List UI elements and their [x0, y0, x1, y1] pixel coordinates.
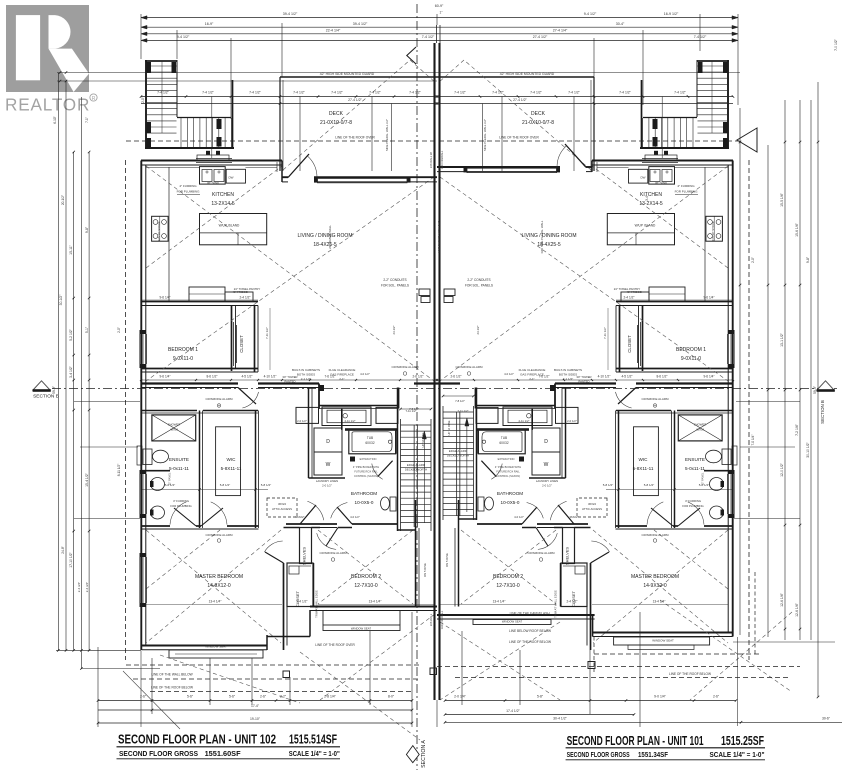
svg-text:24-8": 24-8"	[61, 546, 65, 554]
svg-text:REALTOR: REALTOR	[5, 95, 90, 115]
svg-text:7-6 1/2": 7-6 1/2"	[538, 375, 549, 379]
svg-text:5-6": 5-6"	[187, 695, 194, 699]
svg-text:BEDROOM 2: BEDROOM 2	[351, 574, 381, 580]
svg-text:13-2X14-5: 13-2X14-5	[211, 201, 235, 207]
svg-text:PANTED: PANTED	[284, 380, 295, 384]
svg-text:LINE OF THE ROOF OVER: LINE OF THE ROOF OVER	[315, 643, 355, 647]
svg-text:2-0 1/4": 2-0 1/4"	[454, 695, 467, 699]
svg-text:FLUE CLEARANCE: FLUE CLEARANCE	[519, 368, 546, 372]
svg-text:13-1 1/2": 13-1 1/2"	[780, 332, 784, 346]
svg-text:W: W	[544, 462, 549, 468]
svg-text:5-8 1/2": 5-8 1/2"	[644, 483, 654, 487]
svg-text:1551.60SF: 1551.60SF	[205, 749, 241, 758]
svg-text:2-4 3/4": 2-4 3/4"	[85, 582, 89, 592]
svg-text:DW: DW	[229, 176, 234, 180]
svg-text:1": 1"	[440, 11, 443, 15]
svg-text:23-1/2": 23-1/2"	[392, 326, 396, 335]
svg-text:LIVING / DINING ROOM: LIVING / DINING ROOM	[521, 233, 576, 239]
svg-text:LINE OF THE WALL BELOW: LINE OF THE WALL BELOW	[151, 673, 192, 677]
svg-text:4" FURRING: 4" FURRING	[179, 184, 197, 188]
svg-text:FUTURE ROX RAIL: FUTURE ROX RAIL	[354, 470, 378, 474]
svg-text:30-6": 30-6"	[822, 717, 831, 721]
svg-text:2-4 3/4": 2-4 3/4"	[77, 582, 81, 592]
svg-text:1HR FIREWALL: 1HR FIREWALL	[440, 150, 444, 169]
svg-text:W/UP ISLAND: W/UP ISLAND	[219, 224, 240, 228]
svg-text:13-4 1/4": 13-4 1/4"	[369, 600, 382, 604]
svg-text:36" SINK: 36" SINK	[655, 181, 667, 185]
svg-text:7-4 1/2": 7-4 1/2"	[409, 91, 422, 95]
svg-text:2X6 WALL W/: 2X6 WALL W/	[429, 152, 433, 168]
svg-text:TUB: TUB	[367, 436, 373, 440]
svg-text:30-4": 30-4"	[616, 22, 625, 26]
svg-text:36" SINK: 36" SINK	[207, 181, 219, 185]
svg-text:10-0X5-0: 10-0X5-0	[355, 500, 374, 505]
svg-text:13-4 1/4": 13-4 1/4"	[209, 600, 222, 604]
svg-text:2-0 1/2": 2-0 1/2"	[542, 484, 552, 488]
svg-text:7-6 1/2": 7-6 1/2"	[324, 375, 335, 379]
svg-text:2-0": 2-0"	[117, 327, 121, 333]
svg-text:LINE PLEXIG. WALL 3-6": LINE PLEXIG. WALL 3-6"	[437, 221, 441, 253]
svg-text:7-11 1/2": 7-11 1/2"	[603, 327, 607, 339]
svg-text:SHOWER: SHOWER	[694, 423, 707, 427]
svg-text:59-9": 59-9"	[813, 385, 817, 394]
svg-text:9-0X11-0: 9-0X11-0	[173, 356, 193, 362]
svg-text:LAUNDRY LINEN: LAUNDRY LINEN	[536, 479, 558, 483]
svg-text:2X6 FRAME WALL: 2X6 FRAME WALL	[328, 225, 332, 249]
svg-text:36X22": 36X22"	[569, 515, 578, 519]
svg-text:UP 16 RISE: UP 16 RISE	[421, 432, 425, 447]
svg-text:WIC: WIC	[227, 457, 237, 462]
svg-text:5-8": 5-8"	[537, 695, 544, 699]
svg-text:CONTROL (SAXON): CONTROL (SAXON)	[354, 474, 378, 478]
svg-text:4-10 1/2": 4-10 1/2"	[264, 375, 277, 379]
svg-text:4-5 1/2": 4-5 1/2"	[241, 375, 252, 379]
svg-text:LIVING / DINING ROOM: LIVING / DINING ROOM	[297, 233, 352, 239]
svg-text:2-2": 2-2"	[280, 695, 287, 699]
svg-text:W: W	[326, 462, 331, 468]
svg-text:LAUNDRY LINEN: LAUNDRY LINEN	[316, 479, 338, 483]
svg-text:9-6 1/4": 9-6 1/4"	[159, 296, 170, 300]
svg-text:5-8X11-11: 5-8X11-11	[633, 466, 654, 471]
svg-text:2-2" CONDUITS: 2-2" CONDUITS	[467, 278, 490, 282]
svg-text:30-1/2": 30-1/2"	[59, 294, 63, 306]
svg-text:ENSUITE: ENSUITE	[685, 457, 705, 462]
svg-text:19-10": 19-10"	[250, 717, 261, 721]
svg-text:4-10 1/2": 4-10 1/2"	[598, 375, 611, 379]
svg-text:LINE OF THE ROOF OVER: LINE OF THE ROOF OVER	[499, 136, 539, 140]
svg-text:2-1 1/2": 2-1 1/2"	[301, 377, 311, 381]
svg-text:SECOND FLOOR GROSS: SECOND FLOOR GROSS	[567, 750, 630, 759]
svg-text:LINE BELOW ROOF BELOW: LINE BELOW ROOF BELOW	[509, 629, 551, 633]
svg-text:8-11 1/2": 8-11 1/2"	[117, 464, 121, 477]
svg-text:17-10 1/2": 17-10 1/2"	[69, 551, 73, 567]
svg-text:WINDOW SEAT: WINDOW SEAT	[205, 645, 227, 649]
svg-text:30" TOWER: 30" TOWER	[282, 375, 297, 379]
svg-text:5-8X11-11: 5-8X11-11	[221, 466, 242, 471]
svg-text:12-7X10-0: 12-7X10-0	[354, 583, 378, 589]
svg-text:F/S 30" STOVE: F/S 30" STOVE	[711, 221, 715, 241]
svg-text:7-11 1/2": 7-11 1/2"	[405, 409, 416, 413]
svg-text:9-8": 9-8"	[806, 256, 810, 263]
svg-text:FUTURE ROX RAIL: FUTURE ROX RAIL	[496, 470, 520, 474]
svg-text:PANTED: PANTED	[578, 380, 589, 384]
svg-text:2-0 1/2": 2-0 1/2"	[322, 484, 332, 488]
svg-text:12-7X10-0: 12-7X10-0	[496, 583, 520, 589]
svg-text:2-0": 2-0"	[751, 257, 755, 263]
svg-text:5-0x11-11: 5-0x11-11	[169, 466, 189, 471]
svg-text:BUILT-IN CABINETS: BUILT-IN CABINETS	[554, 368, 582, 372]
svg-text:8-6 1/2": 8-6 1/2"	[206, 375, 217, 379]
svg-text:9-6 1/4": 9-6 1/4"	[703, 296, 714, 300]
svg-text:2-8 1/4": 2-8 1/4"	[324, 695, 337, 699]
svg-text:5-0 1/4": 5-0 1/4"	[165, 483, 175, 487]
svg-text:7-4 1/2": 7-4 1/2"	[331, 91, 344, 95]
svg-text:9-6 1/4": 9-6 1/4"	[159, 375, 170, 379]
svg-text:TRIM AT WALL EDGE: TRIM AT WALL EDGE	[554, 590, 558, 618]
svg-text:36X22": 36X22"	[295, 515, 304, 519]
svg-text:2-2" CONDUITS: 2-2" CONDUITS	[383, 278, 406, 282]
svg-text:30-10 1/2": 30-10 1/2"	[806, 441, 810, 457]
svg-text:4-0 1/2": 4-0 1/2"	[360, 372, 370, 376]
svg-text:BOTH SIDES: BOTH SIDES	[559, 373, 577, 377]
svg-text:21-0X10-0/7-8: 21-0X10-0/7-8	[522, 120, 554, 126]
svg-text:1515.25SF: 1515.25SF	[721, 734, 764, 748]
svg-text:1551.34SF: 1551.34SF	[638, 750, 668, 759]
svg-text:BEDROOM 2: BEDROOM 2	[493, 574, 523, 580]
svg-text:MASTER BEDROOM: MASTER BEDROOM	[631, 574, 679, 580]
svg-text:5-1": 5-1"	[85, 326, 89, 333]
svg-text:12-6 1/4": 12-6 1/4"	[795, 602, 799, 616]
svg-text:R: R	[92, 96, 96, 102]
svg-text:SECTION A: SECTION A	[421, 740, 427, 768]
svg-text:5-8 1/2": 5-8 1/2"	[261, 483, 271, 487]
svg-text:LINE OF THE EAVE/FLASH.: LINE OF THE EAVE/FLASH.	[510, 612, 551, 616]
svg-text:FAR SIDE PLEXIG. WALL: FAR SIDE PLEXIG. WALL	[540, 220, 544, 253]
svg-text:CLOSET: CLOSET	[627, 335, 632, 353]
svg-text:42" HIGH SIDE MOUNTED GUARD: 42" HIGH SIDE MOUNTED GUARD	[320, 72, 375, 76]
svg-text:5-2 1/2": 5-2 1/2"	[69, 328, 73, 341]
svg-text:FOR SOL. PANELS: FOR SOL. PANELS	[381, 284, 409, 288]
svg-text:CR/SMOKE ALARM: CR/SMOKE ALARM	[205, 397, 233, 401]
svg-text:12-0 1/2": 12-0 1/2"	[780, 462, 784, 476]
svg-text:4" FURRING: 4" FURRING	[173, 499, 189, 503]
svg-text:23-1/2": 23-1/2"	[476, 326, 480, 335]
svg-text:UP 16 RISE: UP 16 RISE	[447, 420, 451, 435]
svg-text:16-9 1/2": 16-9 1/2"	[664, 12, 679, 16]
svg-text:2-4 1/2": 2-4 1/2"	[623, 296, 634, 300]
svg-text:BEDROOM 1: BEDROOM 1	[676, 347, 706, 353]
svg-text:SHELVES: SHELVES	[302, 547, 307, 565]
svg-text:LINE OF THE ROOF BELOW: LINE OF THE ROOF BELOW	[151, 686, 193, 690]
svg-text:39-4 1/2": 39-4 1/2"	[353, 22, 368, 26]
svg-text:D: D	[544, 439, 548, 445]
svg-text:SECTION B: SECTION B	[820, 400, 825, 424]
svg-text:D: D	[326, 439, 330, 445]
svg-text:14-9X12-0: 14-9X12-0	[643, 583, 667, 589]
svg-text:F/S 30" STOVE: F/S 30" STOVE	[157, 221, 161, 241]
svg-text:7-2 1/4": 7-2 1/4"	[795, 423, 799, 436]
svg-text:21-0X10-0/7-8: 21-0X10-0/7-8	[320, 120, 352, 126]
svg-text:ENSUITE: ENSUITE	[169, 457, 189, 462]
svg-text:5-6": 5-6"	[229, 695, 236, 699]
svg-text:SHOWER: SHOWER	[168, 423, 181, 427]
svg-text:2X6 WALL: 2X6 WALL	[429, 613, 433, 626]
svg-text:2-11 1/2": 2-11 1/2"	[518, 419, 529, 423]
svg-text:7-4 1/2": 7-4 1/2"	[422, 35, 435, 39]
svg-text:MASTER BEDROOM: MASTER BEDROOM	[195, 574, 243, 580]
svg-text:CLOSET: CLOSET	[239, 335, 244, 353]
svg-text:BUILT-IN CABINETS: BUILT-IN CABINETS	[292, 368, 320, 372]
svg-text:2-4 1/2": 2-4 1/2"	[566, 600, 577, 604]
svg-text:2-11 1/2": 2-11 1/2"	[344, 419, 355, 423]
svg-text:2-1 1/2": 2-1 1/2"	[563, 377, 573, 381]
svg-text:48X36: 48X36	[170, 428, 179, 432]
svg-text:20-1/2": 20-1/2"	[61, 195, 65, 205]
svg-text:CR/SMOKE ALARM: CR/SMOKE ALARM	[455, 365, 483, 369]
svg-text:30" TOWER: 30" TOWER	[576, 375, 591, 379]
svg-text:WINDOW SEAT: WINDOW SEAT	[502, 620, 522, 624]
svg-text:27-4 1/4": 27-4 1/4"	[553, 28, 568, 32]
svg-text:60X32: 60X32	[499, 441, 508, 445]
svg-text:TUB: TUB	[501, 436, 507, 440]
svg-text:EXTRACTION: EXTRACTION	[360, 457, 377, 461]
svg-text:DECK: DECK	[531, 111, 546, 117]
svg-text:39-4 1/2": 39-4 1/2"	[283, 12, 298, 16]
svg-text:60-9": 60-9"	[435, 4, 444, 8]
svg-text:24" TOWEL PANTRY: 24" TOWEL PANTRY	[614, 287, 641, 291]
svg-text:7-4 1/2": 7-4 1/2"	[249, 91, 262, 95]
svg-text:LINE OF THE ROOF BELOW: LINE OF THE ROOF BELOW	[509, 640, 551, 644]
svg-text:27-4 1/2": 27-4 1/2"	[513, 98, 527, 102]
svg-text:2-1": 2-1"	[529, 377, 534, 381]
svg-text:4" PIPE BOXED WITH: 4" PIPE BOXED WITH	[495, 465, 521, 469]
svg-text:DN 5 RISE: DN 5 RISE	[445, 553, 449, 567]
svg-text:FOR PLUMBING: FOR PLUMBING	[170, 504, 191, 508]
svg-text:7-0 1/2": 7-0 1/2"	[834, 38, 838, 51]
svg-text:17-4 1/2": 17-4 1/2"	[506, 709, 520, 713]
svg-text:10-0X5-0: 10-0X5-0	[501, 500, 520, 505]
svg-text:4" FURRING: 4" FURRING	[685, 499, 701, 503]
svg-text:9-4 1/2": 9-4 1/2"	[584, 12, 597, 16]
svg-text:EDGE ALARM: EDGE ALARM	[407, 463, 426, 467]
svg-text:4-5 1/2": 4-5 1/2"	[621, 375, 632, 379]
svg-text:KITCHEN: KITCHEN	[212, 192, 234, 198]
svg-text:5-8 1/2": 5-8 1/2"	[603, 483, 613, 487]
svg-text:7-11 1/2": 7-11 1/2"	[265, 327, 269, 339]
svg-text:WINDOW SEAT: WINDOW SEAT	[351, 627, 371, 631]
svg-text:7-4 1/2": 7-4 1/2"	[293, 91, 306, 95]
svg-text:9-8": 9-8"	[85, 226, 89, 233]
svg-text:2-4 1/2": 2-4 1/2"	[239, 296, 250, 300]
svg-text:SIDE PLEXIG. WALL 3-6": SIDE PLEXIG. WALL 3-6"	[385, 119, 389, 151]
svg-text:2-0 1/2": 2-0 1/2"	[567, 419, 577, 423]
svg-text:5-0x11-11: 5-0x11-11	[685, 466, 705, 471]
svg-text:7-11 1/2": 7-11 1/2"	[457, 409, 468, 413]
svg-text:4-0 1/2": 4-0 1/2"	[514, 515, 524, 519]
svg-text:DN 5 RISE: DN 5 RISE	[423, 563, 427, 577]
svg-text:4" FURRING: 4" FURRING	[677, 184, 695, 188]
svg-text:WIC: WIC	[639, 457, 649, 462]
svg-text:SHELVES: SHELVES	[565, 547, 570, 565]
svg-text:7-4 1/2": 7-4 1/2"	[694, 35, 707, 39]
svg-text:9-4 1/2": 9-4 1/2"	[177, 35, 190, 39]
svg-text:2-6": 2-6"	[713, 695, 720, 699]
svg-text:FOR PLUMBING: FOR PLUMBING	[177, 190, 201, 194]
svg-text:36X22: 36X22	[278, 502, 287, 506]
svg-text:7-4 1/2": 7-4 1/2"	[568, 91, 581, 95]
svg-text:5-8 1/2": 5-8 1/2"	[220, 483, 230, 487]
svg-text:48X36: 48X36	[696, 428, 705, 432]
svg-text:5-0 1/4": 5-0 1/4"	[699, 483, 709, 487]
svg-text:9-6 1/4": 9-6 1/4"	[703, 375, 714, 379]
svg-text:EDGE ALARM: EDGE ALARM	[449, 449, 468, 453]
svg-text:CR/SMOKE ALARM: CR/SMOKE ALARM	[641, 533, 669, 537]
svg-text:SECOND FLOOR GROSS: SECOND FLOOR GROSS	[119, 749, 198, 758]
svg-text:9-0X11-0: 9-0X11-0	[681, 356, 701, 362]
svg-text:BATHROOM: BATHROOM	[351, 491, 377, 496]
svg-text:22-4 1/4": 22-4 1/4"	[326, 28, 341, 32]
svg-text:CR/SMOKE ALARM: CR/SMOKE ALARM	[527, 551, 555, 555]
svg-text:16-9": 16-9"	[205, 22, 214, 26]
svg-text:TRIM AT WALL EDGE: TRIM AT WALL EDGE	[315, 590, 319, 618]
svg-text:2-0": 2-0"	[141, 97, 145, 103]
svg-text:CR/SMOKE ALARM: CR/SMOKE ALARM	[391, 365, 419, 369]
svg-text:LINE OF THE ROOF OVER: LINE OF THE ROOF OVER	[335, 136, 375, 140]
svg-text:15-4 1/2": 15-4 1/2"	[85, 472, 89, 486]
svg-text:42" HIGH SIDE MOUNTED GUARD: 42" HIGH SIDE MOUNTED GUARD	[500, 72, 555, 76]
svg-text:FOR PLUMBING: FOR PLUMBING	[682, 504, 703, 508]
svg-text:2-1": 2-1"	[339, 377, 344, 381]
svg-text:EXTRACTION: EXTRACTION	[498, 457, 515, 461]
svg-text:FOR PLUMBING: FOR PLUMBING	[675, 190, 699, 194]
svg-text:BEDROOM 1: BEDROOM 1	[168, 347, 198, 353]
svg-text:SIDE PLEXIG. WALL 3-6": SIDE PLEXIG. WALL 3-6"	[483, 119, 487, 151]
svg-text:2-6 1/2": 2-6 1/2"	[412, 375, 423, 379]
svg-text:8-0": 8-0"	[388, 695, 395, 699]
svg-text:1515.514SF: 1515.514SF	[289, 733, 337, 747]
svg-text:SECOND FLOOR PLAN - UNIT 101: SECOND FLOOR PLAN - UNIT 101	[567, 734, 704, 748]
svg-text:2-4 1/2": 2-4 1/2"	[296, 600, 307, 604]
svg-text:7-4 1/2": 7-4 1/2"	[530, 91, 543, 95]
svg-text:7-8 1/2": 7-8 1/2"	[455, 399, 465, 403]
svg-text:DECK: DECK	[329, 111, 344, 117]
svg-text:7-4 1/2": 7-4 1/2"	[492, 91, 505, 95]
svg-text:8-6 1/2": 8-6 1/2"	[656, 375, 667, 379]
svg-text:17-4": 17-4"	[251, 704, 260, 708]
svg-text:27-4 1/2": 27-4 1/2"	[348, 98, 362, 102]
svg-text:13-2X14-5: 13-2X14-5	[639, 201, 663, 207]
svg-text:13-4 1/4": 13-4 1/4"	[493, 600, 506, 604]
svg-text:SCALE 1/4" = 1-0": SCALE 1/4" = 1-0"	[710, 750, 765, 759]
svg-text:15-5 1/4": 15-5 1/4"	[780, 192, 784, 206]
svg-text:24" TOWEL PANTRY: 24" TOWEL PANTRY	[234, 287, 261, 291]
svg-text:12-6 1/4": 12-6 1/4"	[780, 592, 784, 606]
svg-text:CONTROL (SAXON): CONTROL (SAXON)	[496, 474, 520, 478]
svg-text:30-4 1/2": 30-4 1/2"	[553, 717, 567, 721]
svg-text:KITCHEN: KITCHEN	[640, 192, 662, 198]
svg-text:SCALE 1/4" = 1-0": SCALE 1/4" = 1-0"	[289, 749, 340, 758]
svg-text:DECKED NORTH: DECKED NORTH	[405, 468, 427, 472]
svg-text:CR/SMOKE ALARM: CR/SMOKE ALARM	[641, 397, 669, 401]
svg-text:4" PIPE BOXED WITH: 4" PIPE BOXED WITH	[353, 465, 379, 469]
svg-text:DW: DW	[641, 176, 646, 180]
svg-text:ATTIC ACCESS: ATTIC ACCESS	[272, 507, 292, 511]
svg-text:2-6": 2-6"	[260, 695, 267, 699]
svg-text:59-9": 59-9"	[52, 385, 56, 394]
svg-text:FOR SOL. PANELS: FOR SOL. PANELS	[465, 284, 493, 288]
svg-text:1HR FIREWALL: 1HR FIREWALL	[440, 610, 444, 629]
svg-text:7-4 1/2": 7-4 1/2"	[454, 91, 467, 95]
svg-text:7-4 1/2": 7-4 1/2"	[202, 91, 215, 95]
svg-text:2-6 1/2": 2-6 1/2"	[450, 375, 461, 379]
svg-text:7-1": 7-1"	[85, 117, 89, 123]
svg-text:7-4 1/2": 7-4 1/2"	[369, 91, 382, 95]
svg-text:BATHROOM: BATHROOM	[497, 491, 523, 496]
svg-text:60X32: 60X32	[365, 441, 374, 445]
svg-text:LINE OF THE ROOF BELOW: LINE OF THE ROOF BELOW	[669, 672, 711, 676]
svg-text:DECKED NORTH: DECKED NORTH	[447, 454, 469, 458]
svg-text:7-4 1/2": 7-4 1/2"	[619, 91, 632, 95]
svg-text:CR/SMOKE ALARM: CR/SMOKE ALARM	[319, 551, 347, 555]
svg-text:7-0 1/4": 7-0 1/4"	[751, 434, 755, 445]
svg-text:7-4 1/2": 7-4 1/2"	[674, 91, 687, 95]
svg-text:ATTIC ACCESS: ATTIC ACCESS	[582, 507, 602, 511]
svg-text:18-4X25-5: 18-4X25-5	[313, 242, 337, 248]
svg-text:2-6": 2-6"	[140, 695, 147, 699]
svg-text:BOTH SIDES: BOTH SIDES	[297, 373, 315, 377]
svg-text:FLUE CLEARANCE: FLUE CLEARANCE	[329, 368, 356, 372]
svg-text:15-11": 15-11"	[69, 244, 73, 254]
svg-text:15-6 1/4": 15-6 1/4"	[795, 222, 799, 236]
svg-text:4-0 1/2": 4-0 1/2"	[504, 372, 514, 376]
svg-text:CR/SMOKE ALARM: CR/SMOKE ALARM	[205, 533, 233, 537]
svg-text:WINDOW SEAT: WINDOW SEAT	[652, 639, 674, 643]
svg-text:36X22: 36X22	[588, 502, 597, 506]
svg-text:9-0 1/4": 9-0 1/4"	[654, 695, 667, 699]
svg-text:6-10": 6-10"	[53, 116, 57, 124]
svg-text:13-4 1/4": 13-4 1/4"	[653, 600, 666, 604]
svg-text:2-0 1/2": 2-0 1/2"	[297, 419, 307, 423]
svg-text:14-9X12-0: 14-9X12-0	[207, 583, 231, 589]
svg-text:SECOND FLOOR PLAN - UNIT 102: SECOND FLOOR PLAN - UNIT 102	[118, 733, 276, 747]
svg-text:4-0 1/2": 4-0 1/2"	[350, 515, 360, 519]
svg-text:7-4 1/2": 7-4 1/2"	[157, 91, 170, 95]
svg-text:W/UP ISLAND: W/UP ISLAND	[635, 224, 656, 228]
svg-text:3-4 1/2": 3-4 1/2"	[69, 365, 73, 378]
svg-text:27-4 1/2": 27-4 1/2"	[533, 35, 548, 39]
